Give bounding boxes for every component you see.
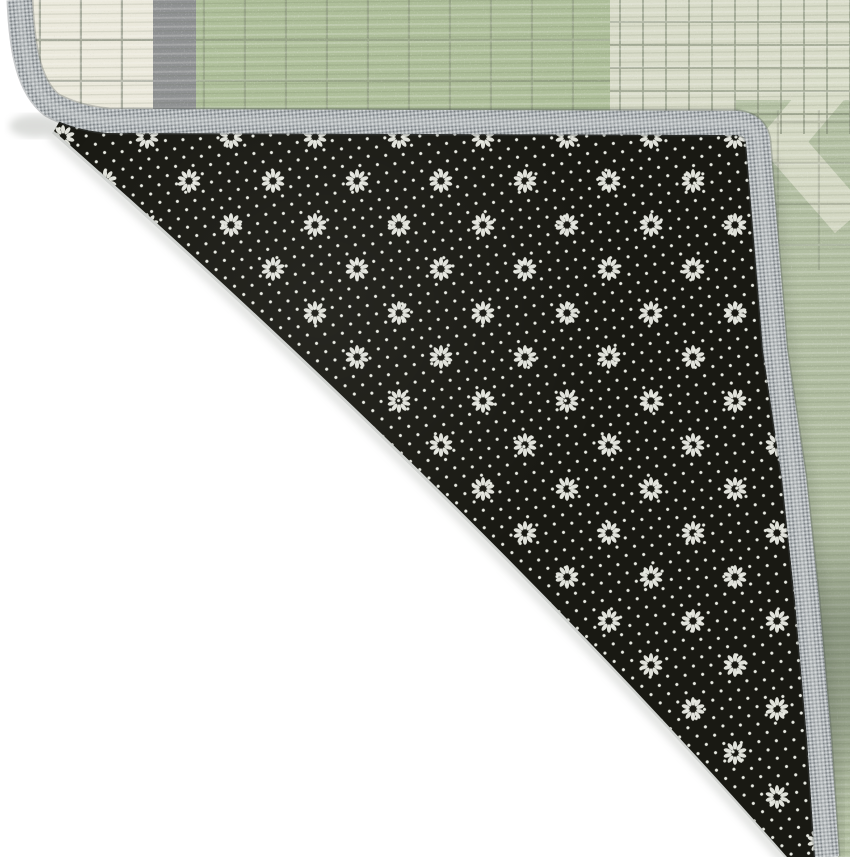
rug-photo-rendering — [0, 0, 850, 857]
rug-product-photo — [0, 0, 850, 857]
